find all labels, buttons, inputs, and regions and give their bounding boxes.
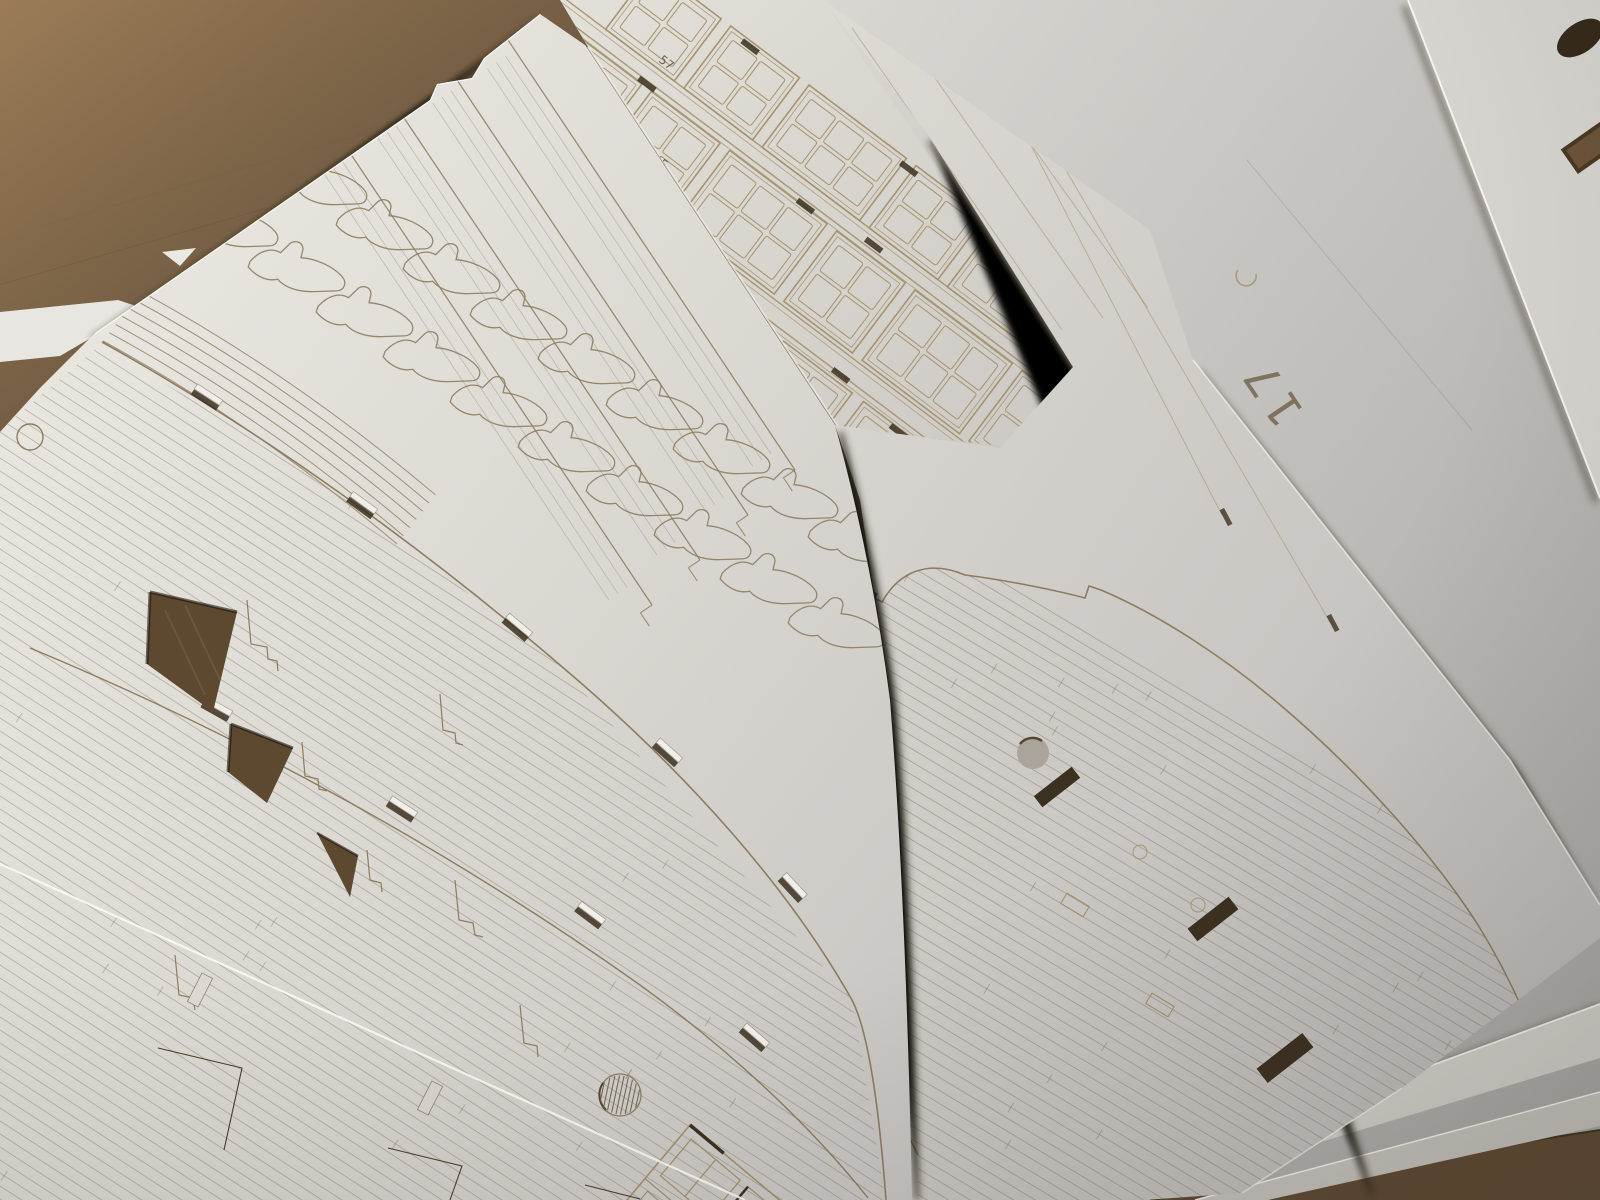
vignette	[0, 0, 1600, 1200]
photo-laser-cut-sheets: 17	[0, 0, 1600, 1200]
